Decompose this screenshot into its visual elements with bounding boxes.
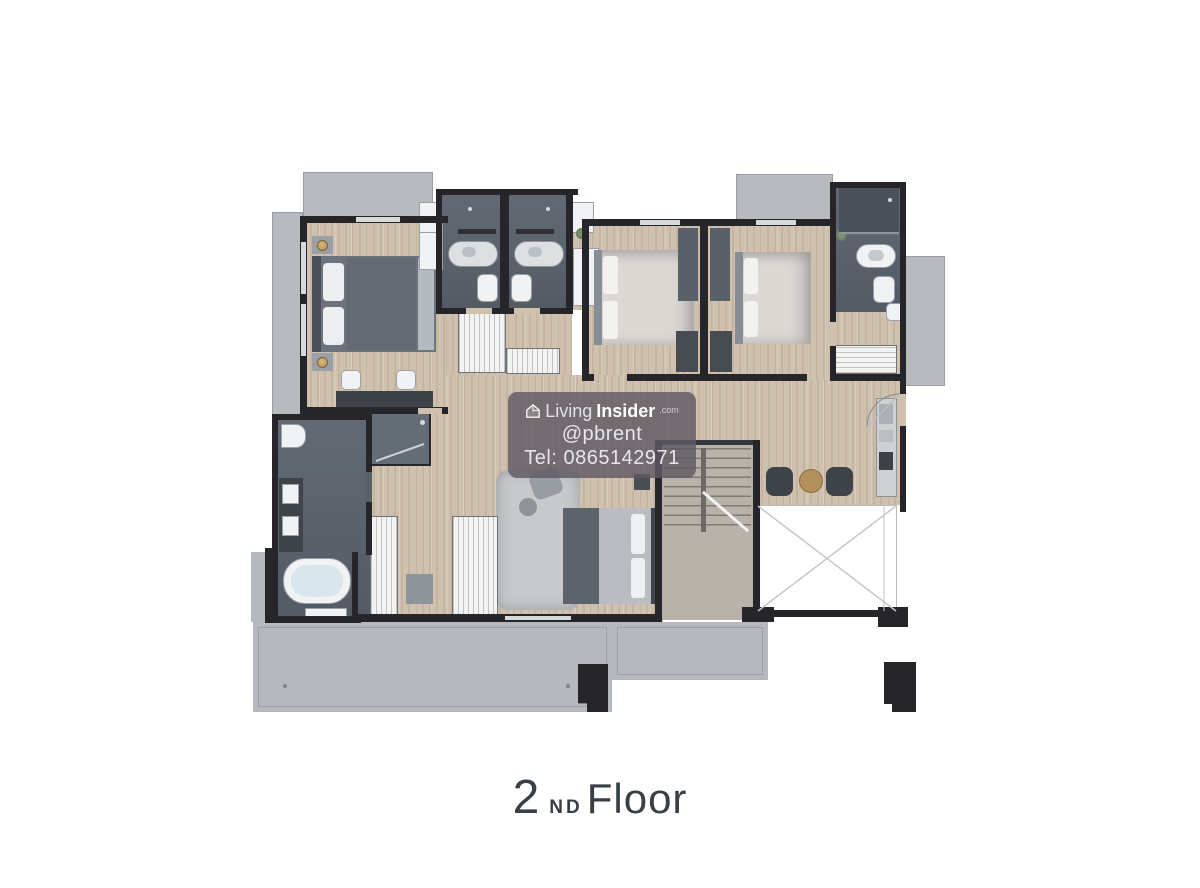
side-table — [519, 498, 537, 516]
window-opening — [301, 304, 306, 356]
wall-segment — [582, 374, 594, 381]
window-opening — [505, 616, 571, 620]
watermark-brand-prefix: Living — [545, 401, 592, 421]
bed-pillow — [323, 263, 344, 301]
bed-headboard — [312, 256, 321, 352]
wall-segment — [582, 219, 836, 226]
wall-segment — [700, 225, 708, 380]
bed-pillow — [744, 258, 758, 294]
window-opening — [356, 217, 400, 222]
bed-pillow — [603, 301, 618, 339]
watermark-badge: LivingInsider.com @pbrent Tel: 086514297… — [508, 392, 696, 478]
sink-icon — [282, 484, 299, 504]
floor-plan-page: LivingInsider.com @pbrent Tel: 086514297… — [0, 0, 1200, 888]
terrace-railing — [258, 627, 607, 707]
counter-item — [879, 404, 893, 424]
caption-floor-number: 2 — [513, 770, 540, 825]
shower-head-icon — [546, 207, 550, 211]
bed-pillow — [631, 514, 645, 554]
balcony-top-left — [303, 172, 433, 222]
bed-pillow — [323, 307, 344, 345]
window-opening — [301, 242, 306, 294]
desk-chair — [341, 370, 361, 390]
sink-icon — [282, 516, 299, 536]
door-opening — [830, 322, 836, 346]
wall-segment — [566, 189, 573, 314]
wardrobe-cabinet — [710, 228, 730, 301]
lamp-icon — [317, 357, 328, 368]
bed-pillow — [603, 256, 618, 294]
wall-segment — [830, 374, 906, 381]
wall-segment — [366, 502, 372, 555]
watermark-brand-suffix: Insider — [596, 401, 655, 421]
closet-unit — [458, 313, 506, 373]
watermark-brand-tld: .com — [659, 400, 679, 422]
bed-duvet — [346, 258, 416, 350]
watermark-phone: Tel: 0865142971 — [524, 447, 679, 470]
wall-segment — [272, 414, 372, 420]
watermark-brand-row: LivingInsider.com — [525, 400, 679, 422]
counter-sink — [879, 452, 893, 470]
balcony-door-opening — [900, 394, 906, 426]
shower-shelf — [516, 229, 554, 234]
wall-segment — [753, 440, 760, 622]
wardrobe-row — [452, 516, 498, 618]
wall-segment — [627, 374, 807, 381]
wall-segment — [272, 414, 278, 622]
door-opening — [366, 472, 372, 502]
sink-icon — [462, 247, 476, 257]
tv-cabinet — [710, 331, 732, 372]
dressing-ottoman — [406, 574, 433, 604]
caption: 2 ND Floor — [0, 770, 1200, 825]
sink-icon — [528, 247, 542, 257]
door-opening — [466, 308, 492, 314]
bed-headboard — [735, 252, 743, 344]
built-in-desk — [833, 345, 897, 374]
shower-head-icon — [468, 207, 472, 211]
wardrobe-cabinet — [678, 228, 698, 301]
terrace-railing — [617, 627, 763, 675]
balcony-top-right — [736, 174, 833, 225]
bed-pillow — [744, 301, 758, 337]
wall-segment — [436, 189, 442, 314]
watermark-handle: @pbrent — [562, 423, 643, 446]
bed-pillow — [631, 558, 645, 598]
wall-segment — [436, 308, 573, 314]
wall-segment — [265, 548, 272, 622]
balcony-right — [903, 256, 945, 386]
bed-1 — [312, 256, 436, 352]
wardrobe-row — [370, 516, 398, 618]
shower-area — [839, 188, 899, 232]
tv-cabinet — [676, 331, 698, 372]
terrace-east — [612, 622, 768, 680]
shower-room-walls — [370, 411, 431, 466]
wall-segment — [582, 219, 589, 380]
wall-segment — [900, 182, 906, 394]
toilet-icon — [511, 274, 532, 302]
toilet-icon — [477, 274, 498, 302]
window-opening — [640, 220, 680, 225]
bathtub-water — [291, 565, 343, 597]
wall-segment — [833, 182, 906, 188]
terrace-west-arm — [251, 552, 266, 622]
counter-item — [879, 430, 893, 442]
armchair — [826, 467, 853, 496]
desk-chair — [396, 370, 416, 390]
wall-segment — [500, 195, 509, 308]
door-opening — [514, 308, 540, 314]
caption-floor-ordinal: ND — [539, 797, 586, 819]
master-bed — [563, 508, 660, 604]
wall-segment — [352, 552, 358, 622]
balcony-left — [272, 212, 303, 420]
bed-3 — [735, 252, 811, 344]
toilet-icon — [873, 276, 895, 303]
terrace-main — [253, 622, 612, 712]
lamp-icon — [317, 240, 328, 251]
bed-headboard — [594, 250, 602, 345]
terrace-light-dot — [283, 684, 287, 688]
wall-pier — [878, 607, 908, 627]
terrace-light-dot — [566, 684, 570, 688]
wall-segment — [265, 616, 361, 623]
desk-bedroom-1 — [336, 391, 433, 408]
wall-segment — [900, 426, 906, 512]
door-opening — [418, 408, 442, 414]
closet-unit — [506, 348, 560, 374]
wall-segment — [830, 182, 836, 322]
double-height-void — [757, 505, 897, 612]
shower-head-icon — [888, 198, 892, 202]
stair-stringer — [701, 448, 706, 532]
detached-column — [884, 662, 916, 712]
shower-glass — [839, 232, 899, 234]
house-icon — [525, 403, 541, 419]
round-table — [799, 469, 823, 493]
wall-pier — [742, 607, 774, 622]
bed-fold — [418, 258, 434, 350]
sink-icon — [868, 250, 884, 261]
shower-shelf — [458, 229, 496, 234]
armchair — [766, 467, 793, 496]
window-opening — [756, 220, 796, 225]
toilet-icon — [281, 424, 306, 448]
caption-floor-word: Floor — [587, 775, 688, 823]
